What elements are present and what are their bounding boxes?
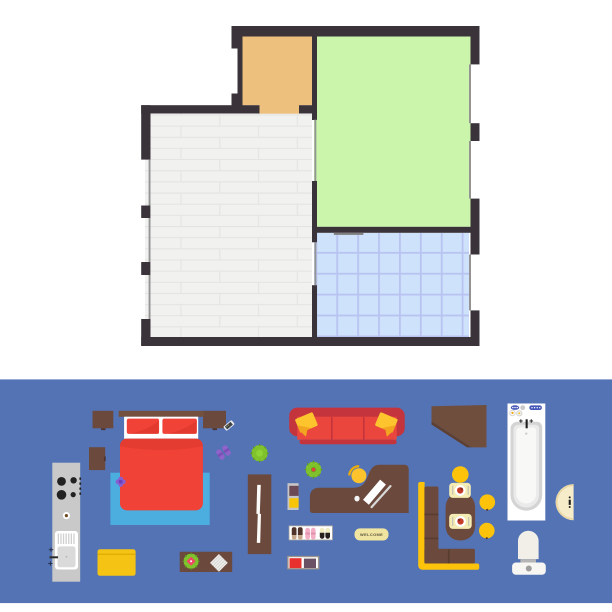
svg-text:WELCOME: WELCOME [360,532,383,537]
